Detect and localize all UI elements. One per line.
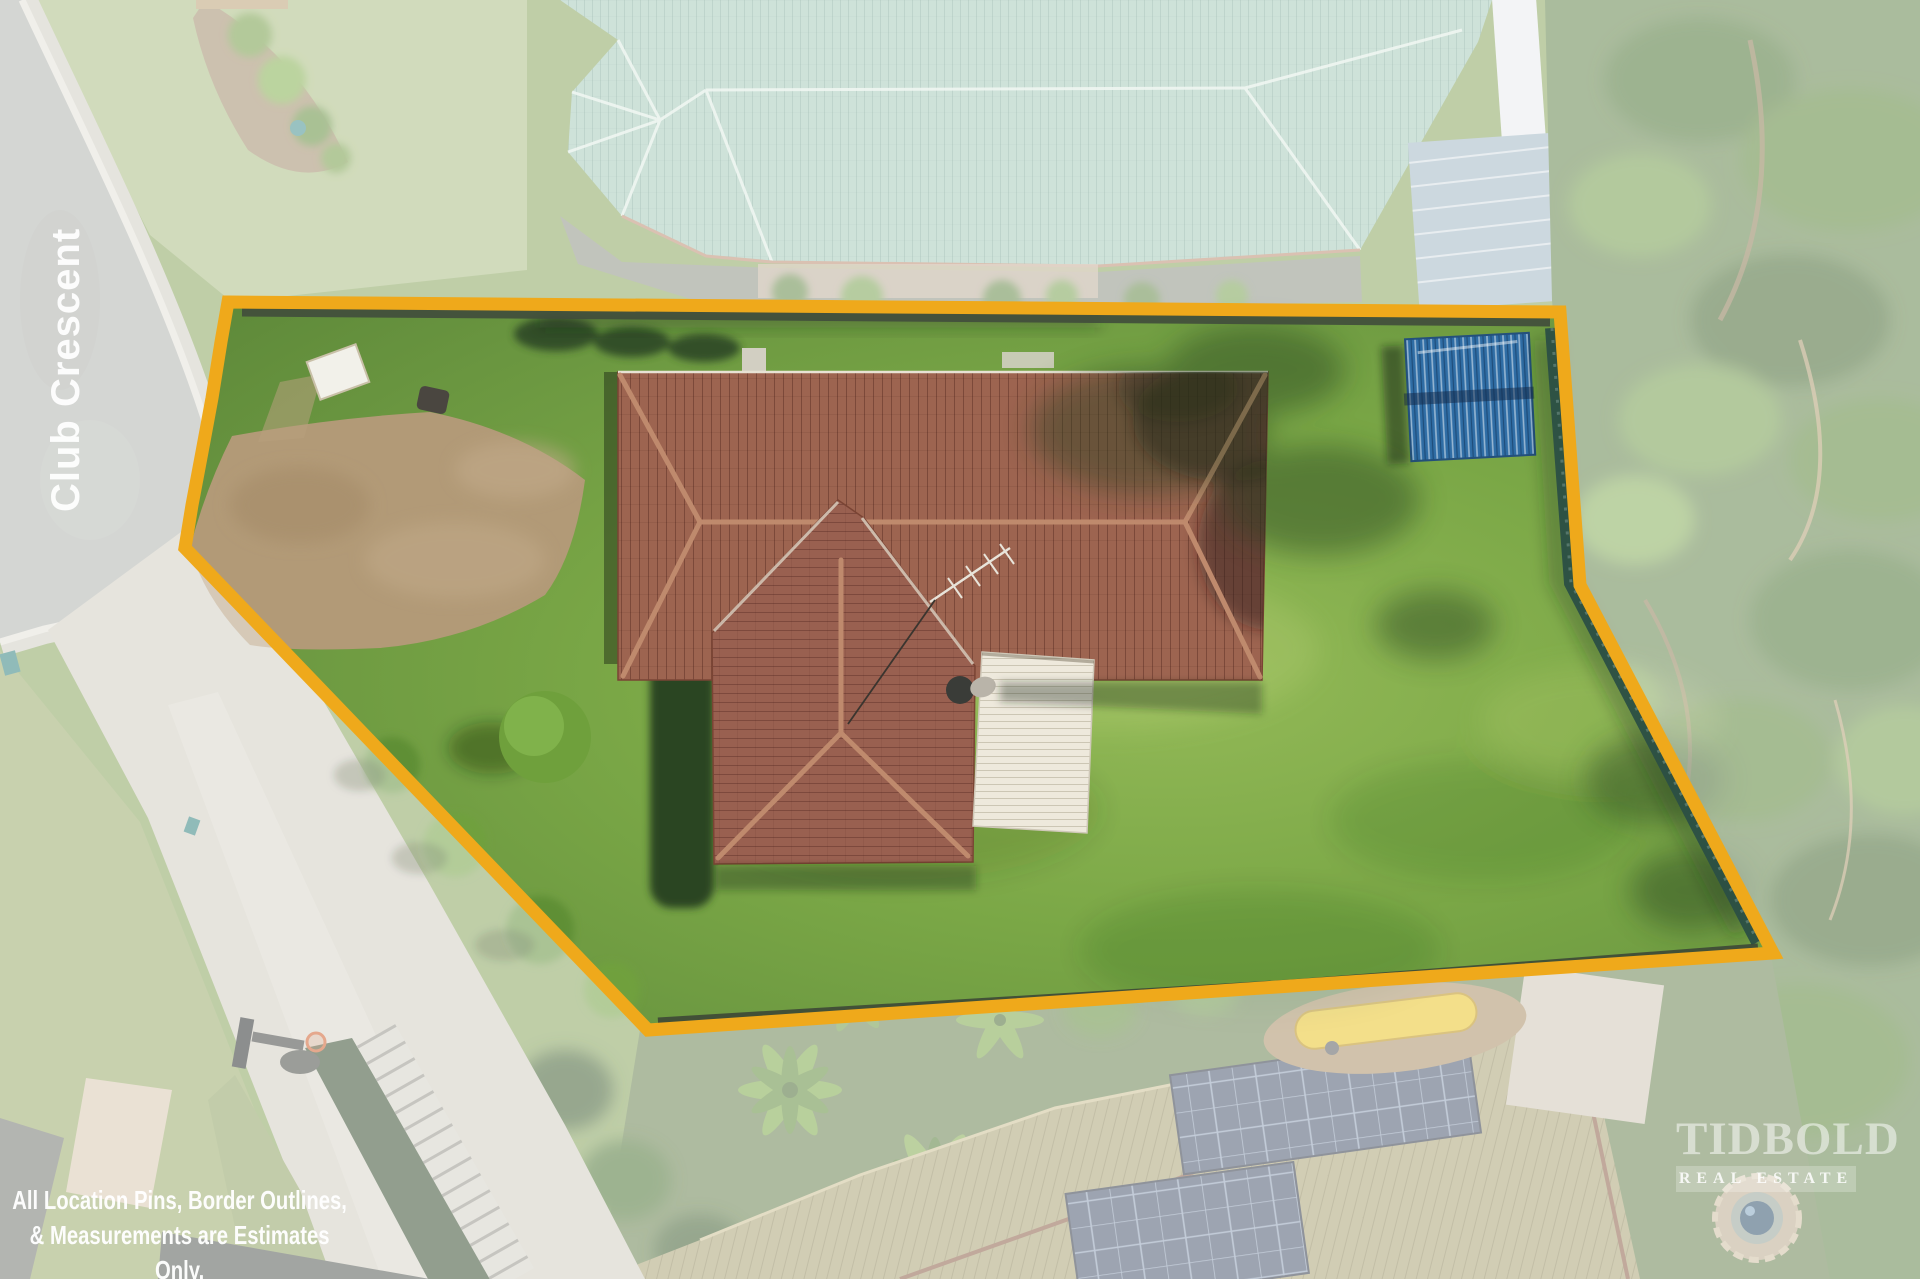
- agency-watermark: TIDBOLD REAL ESTATE: [1676, 1114, 1856, 1192]
- aerial-photo-stage: Club Crescent All Location Pins, Border …: [0, 0, 1920, 1279]
- outside-fade-overlay: [0, 0, 1920, 1279]
- agency-watermark-brand: TIDBOLD: [1676, 1114, 1856, 1164]
- disclaimer-text: All Location Pins, Border Outlines, & Me…: [8, 1183, 351, 1279]
- disclaimer-line-1: All Location Pins, Border Outlines,: [8, 1183, 351, 1218]
- disclaimer-line-2: & Measurements are Estimates Only.: [8, 1218, 351, 1279]
- aerial-photo: [0, 0, 1920, 1279]
- street-name-label: Club Crescent: [44, 228, 88, 512]
- agency-watermark-tagline: REAL ESTATE: [1676, 1166, 1856, 1192]
